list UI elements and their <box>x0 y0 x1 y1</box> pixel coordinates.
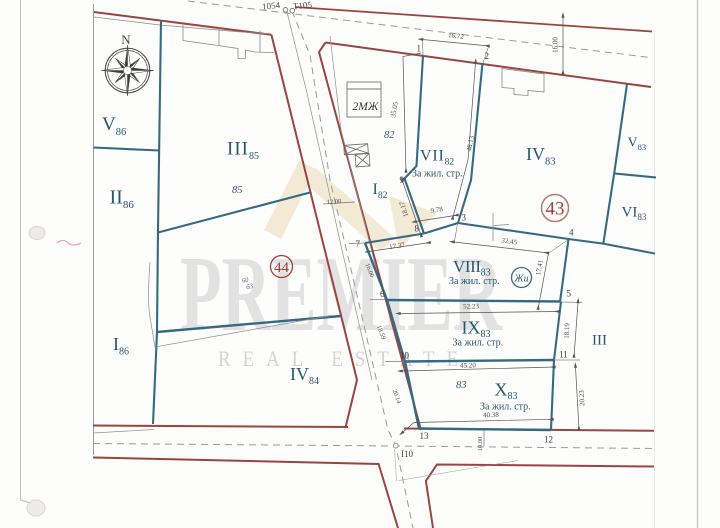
svg-text:2: 2 <box>485 51 490 61</box>
svg-text:16.00: 16.00 <box>552 37 560 53</box>
svg-text:82: 82 <box>384 130 395 141</box>
svg-text:REAL ESTATE: REAL ESTATE <box>218 346 470 371</box>
svg-text:N: N <box>121 32 131 47</box>
svg-text:18.19: 18.19 <box>563 322 572 339</box>
svg-text:I10: I10 <box>401 449 413 459</box>
svg-text:За жил. стр.: За жил. стр. <box>480 402 531 413</box>
svg-text:1054: 1054 <box>262 0 281 12</box>
svg-text:2МЖ: 2МЖ <box>353 101 379 113</box>
svg-text:85: 85 <box>232 185 243 196</box>
svg-text:12.00: 12.00 <box>326 198 341 206</box>
svg-text:6: 6 <box>380 289 385 299</box>
svg-text:Жи: Жи <box>513 274 528 285</box>
svg-text:III: III <box>592 333 607 349</box>
svg-text:52.23: 52.23 <box>463 302 479 310</box>
svg-text:4: 4 <box>569 228 574 238</box>
svg-text:44: 44 <box>274 260 290 276</box>
svg-text:За жил. стр.: За жил. стр. <box>449 276 500 287</box>
svg-text:3: 3 <box>462 213 467 223</box>
svg-text:10: 10 <box>400 351 410 361</box>
svg-text:8: 8 <box>415 224 420 234</box>
svg-text:10.00: 10.00 <box>477 437 484 452</box>
svg-text:За жил. стр.: За жил. стр. <box>412 169 463 180</box>
svg-text:20.23: 20.23 <box>578 390 587 407</box>
svg-text:12: 12 <box>544 435 553 445</box>
svg-text:5: 5 <box>567 289 572 299</box>
svg-text:9: 9 <box>400 175 405 185</box>
svg-text:PREMIER: PREMIER <box>180 235 503 354</box>
svg-text:7: 7 <box>356 239 361 249</box>
svg-text:13: 13 <box>420 431 430 441</box>
svg-text:83: 83 <box>456 380 467 391</box>
svg-text:11: 11 <box>559 350 568 360</box>
svg-text:1: 1 <box>417 44 422 54</box>
svg-text:45.20: 45.20 <box>460 361 476 369</box>
svg-text:43: 43 <box>546 199 565 220</box>
svg-text:За жил. стр.: За жил. стр. <box>453 338 504 349</box>
